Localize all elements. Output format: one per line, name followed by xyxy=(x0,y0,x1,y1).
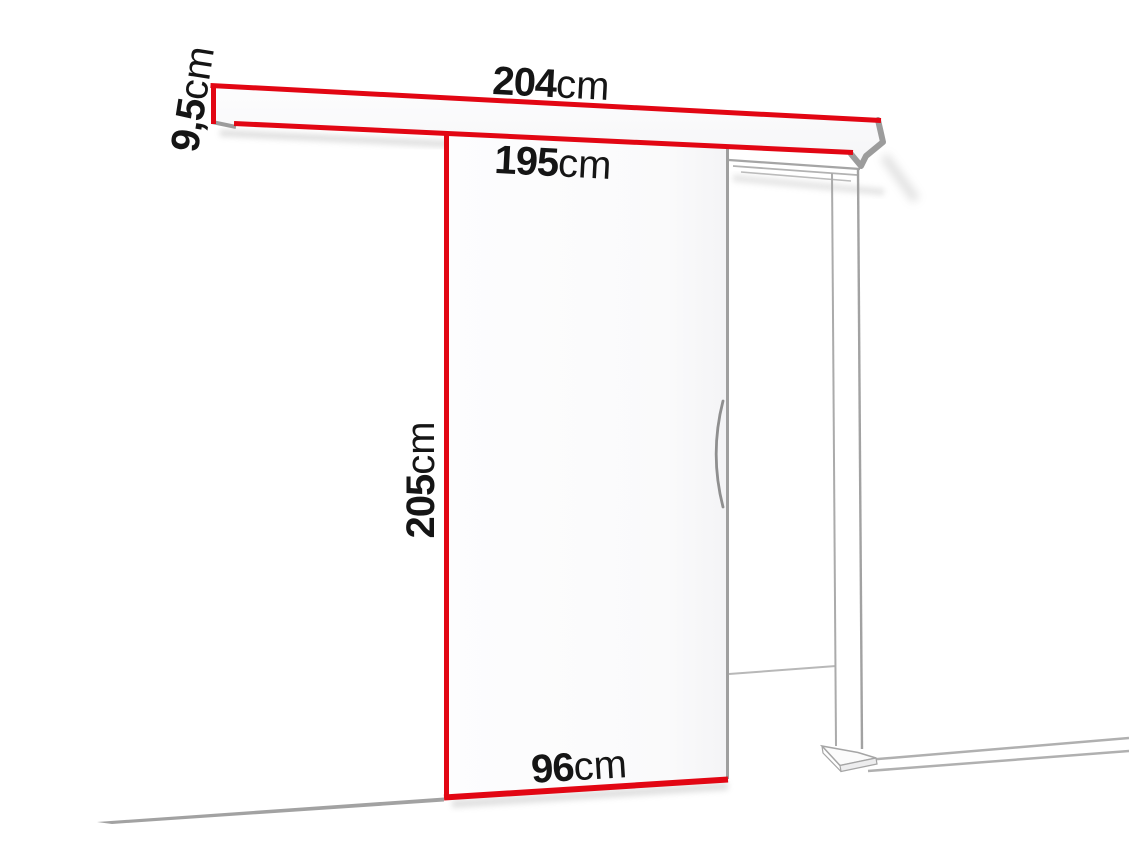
dim-track-width-value: 204 xyxy=(491,59,557,106)
dim-track-height-value: 9,5 xyxy=(163,96,215,155)
floor-line-right-lower xyxy=(868,751,1129,771)
dim-door-height: 205cm xyxy=(401,421,441,538)
dim-door-width-value: 96 xyxy=(530,745,575,792)
dim-track-width-unit: cm xyxy=(555,62,611,109)
rail-shadow-left xyxy=(220,133,448,144)
door-frame xyxy=(729,160,877,772)
floor-line-left xyxy=(97,798,444,825)
dim-track-height-unit: cm xyxy=(171,43,223,103)
rail-end-shadow xyxy=(884,156,916,200)
floor-line-right-upper xyxy=(866,738,1129,760)
dim-track-width: 204cm xyxy=(491,61,610,107)
dim-clear-width: 195cm xyxy=(493,140,612,186)
sliding-door-dimension-diagram: 204cm 9,5cm 195cm 205cm 96cm xyxy=(0,0,1129,847)
dim-door-height-unit: cm xyxy=(399,421,443,474)
dim-door-width-unit: cm xyxy=(572,742,628,789)
dim-door-height-value: 205 xyxy=(399,475,443,539)
doorway-floor-line xyxy=(729,666,836,674)
dim-door-width: 96cm xyxy=(530,744,628,790)
rail-shadow-right xyxy=(733,178,884,192)
dim-clear-width-unit: cm xyxy=(557,141,613,188)
frame-jamb-right-edge xyxy=(858,169,862,749)
frame-jamb-left-edge xyxy=(832,173,836,746)
dim-clear-width-value: 195 xyxy=(493,138,559,185)
door-panel xyxy=(444,131,728,798)
door-face xyxy=(445,131,727,798)
